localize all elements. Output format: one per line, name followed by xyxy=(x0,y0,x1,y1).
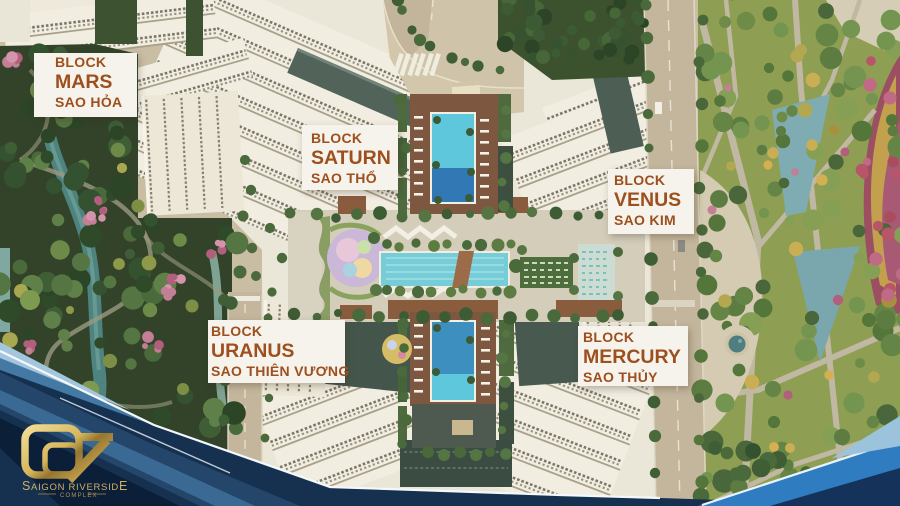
svg-text:COMPLEX: COMPLEX xyxy=(60,493,98,499)
svg-text:SAIGON RIVERSIDE: SAIGON RIVERSIDE xyxy=(22,479,128,493)
